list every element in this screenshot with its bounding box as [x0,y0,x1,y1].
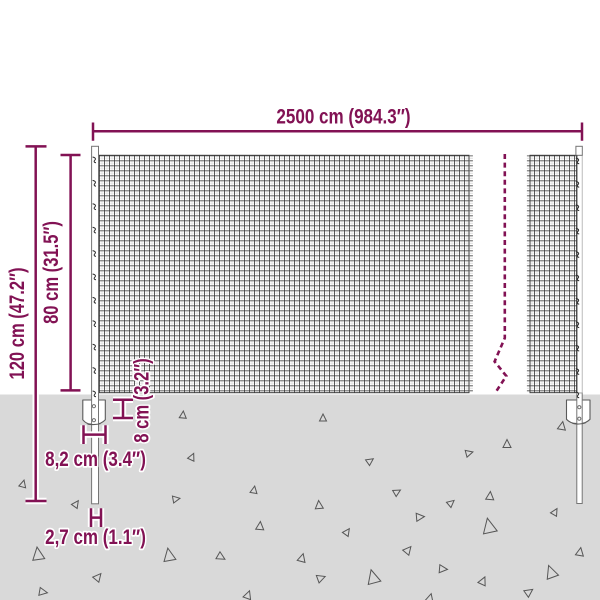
svg-text:120 cm (47.2″): 120 cm (47.2″) [6,267,29,379]
svg-text:80 cm (31.5″): 80 cm (31.5″) [40,221,63,324]
svg-text:8 cm (3.2″): 8 cm (3.2″) [131,358,154,442]
svg-text:2500 cm (984.3″): 2500 cm (984.3″) [276,106,410,129]
svg-text:2,7 cm (1.1″): 2,7 cm (1.1″) [45,526,146,549]
svg-text:8,2 cm (3.4″): 8,2 cm (3.4″) [45,448,146,471]
